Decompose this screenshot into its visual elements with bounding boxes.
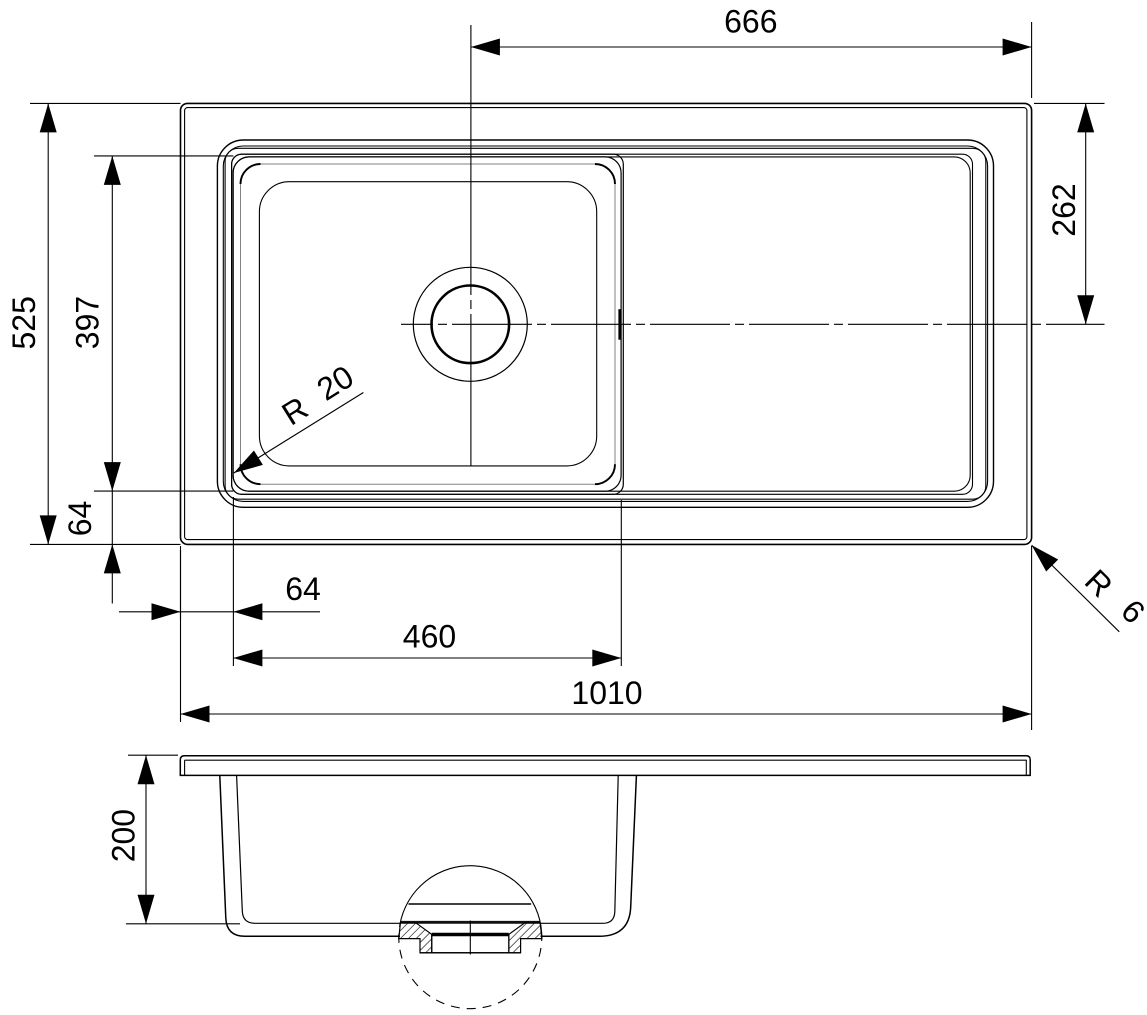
svg-text:397: 397: [69, 296, 105, 349]
svg-text:666: 666: [724, 4, 777, 40]
svg-text:262: 262: [1046, 183, 1082, 236]
svg-text:525: 525: [6, 296, 42, 349]
svg-text:200: 200: [106, 809, 142, 862]
svg-text:64: 64: [285, 571, 321, 607]
svg-text:460: 460: [403, 619, 456, 655]
svg-text:1010: 1010: [571, 675, 642, 711]
svg-text:64: 64: [62, 501, 98, 537]
